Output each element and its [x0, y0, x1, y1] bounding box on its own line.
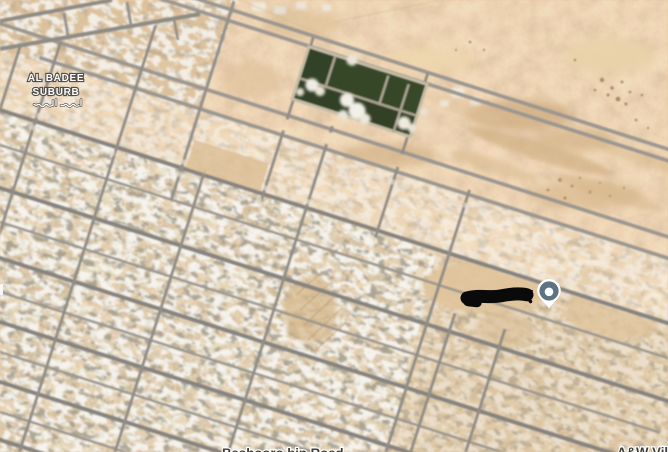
svg-text:Bashooro bin Road: Bashooro bin Road — [222, 446, 344, 452]
svg-text:AL BADEE: AL BADEE — [28, 73, 85, 84]
svg-text:SUBURB: SUBURB — [33, 87, 80, 98]
svg-text:A&W Vil: A&W Vil — [617, 445, 668, 452]
